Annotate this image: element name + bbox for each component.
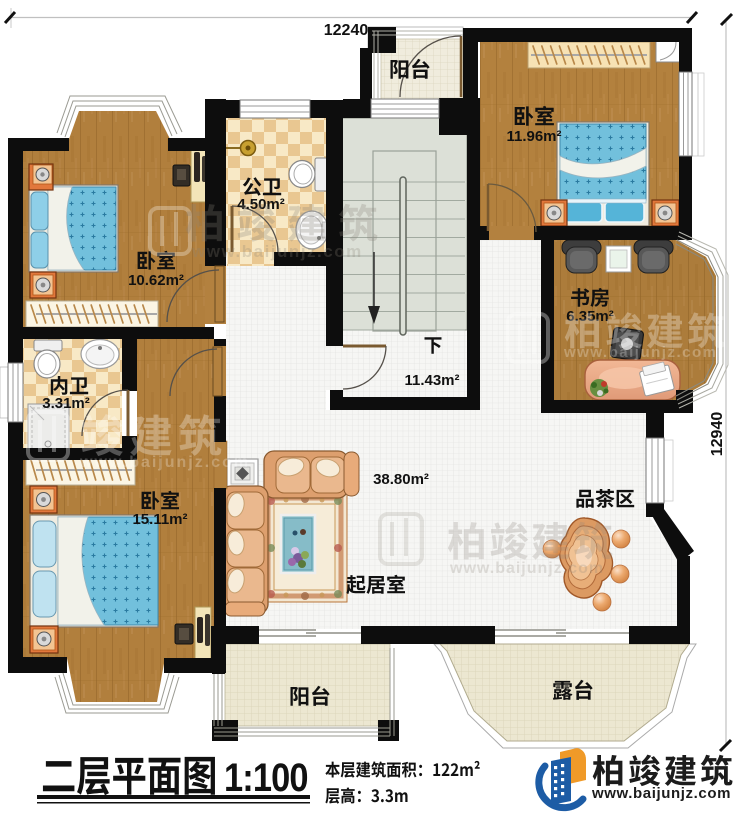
svg-text:11.96m²: 11.96m² [506, 128, 561, 145]
svg-text:www.baijunjz.com: www.baijunjz.com [449, 560, 604, 577]
svg-text:www.baijunjz.com: www.baijunjz.com [191, 242, 363, 261]
svg-text:15.11m²: 15.11m² [132, 511, 187, 528]
svg-text:11.43m²: 11.43m² [404, 372, 459, 389]
svg-text:www.baijunjz.com: www.baijunjz.com [79, 454, 250, 471]
svg-text:3.31m²: 3.31m² [42, 395, 90, 412]
svg-text:12940: 12940 [709, 412, 726, 457]
svg-text:www.baijunjz.com: www.baijunjz.com [563, 344, 717, 361]
svg-text:10.62m²: 10.62m² [128, 272, 184, 289]
svg-text:38.80m²: 38.80m² [373, 471, 429, 488]
svg-text:12240: 12240 [324, 22, 369, 39]
svg-text:www.baijunjz.com: www.baijunjz.com [591, 785, 731, 802]
svg-text:1:100: 1:100 [224, 755, 308, 800]
